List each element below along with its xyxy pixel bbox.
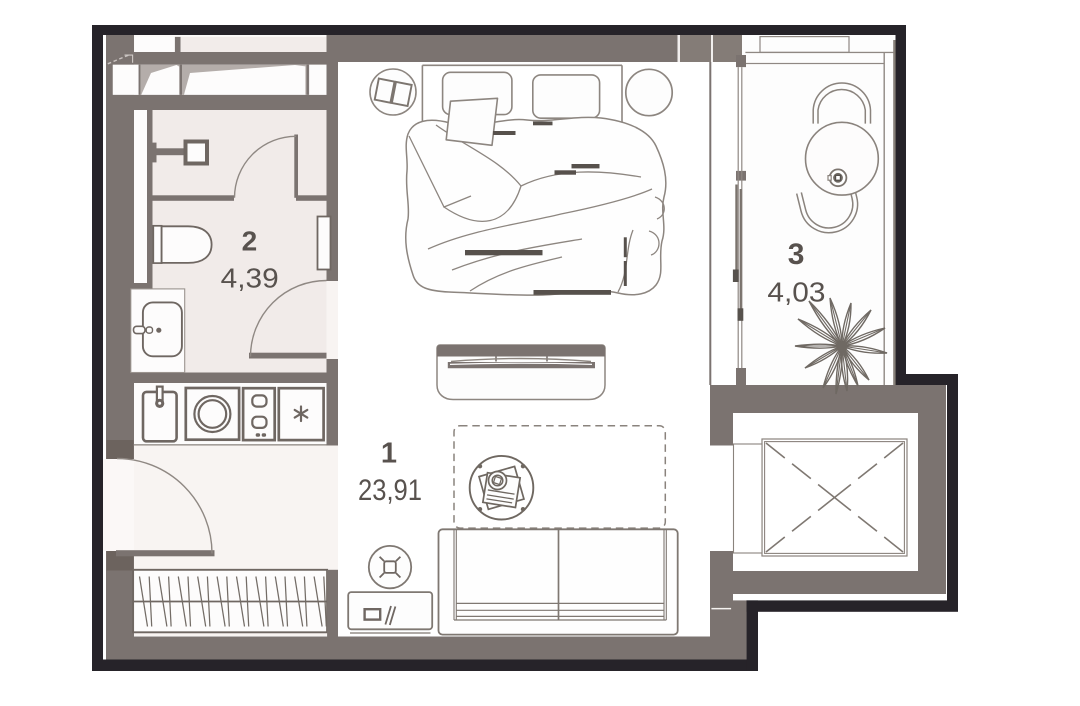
svg-text:4,39: 4,39 — [221, 263, 279, 294]
svg-text:4,03: 4,03 — [767, 277, 825, 308]
svg-text:1: 1 — [381, 438, 397, 470]
svg-text:2: 2 — [242, 226, 258, 257]
svg-text:3: 3 — [788, 238, 805, 271]
svg-text:23,91: 23,91 — [358, 474, 422, 507]
